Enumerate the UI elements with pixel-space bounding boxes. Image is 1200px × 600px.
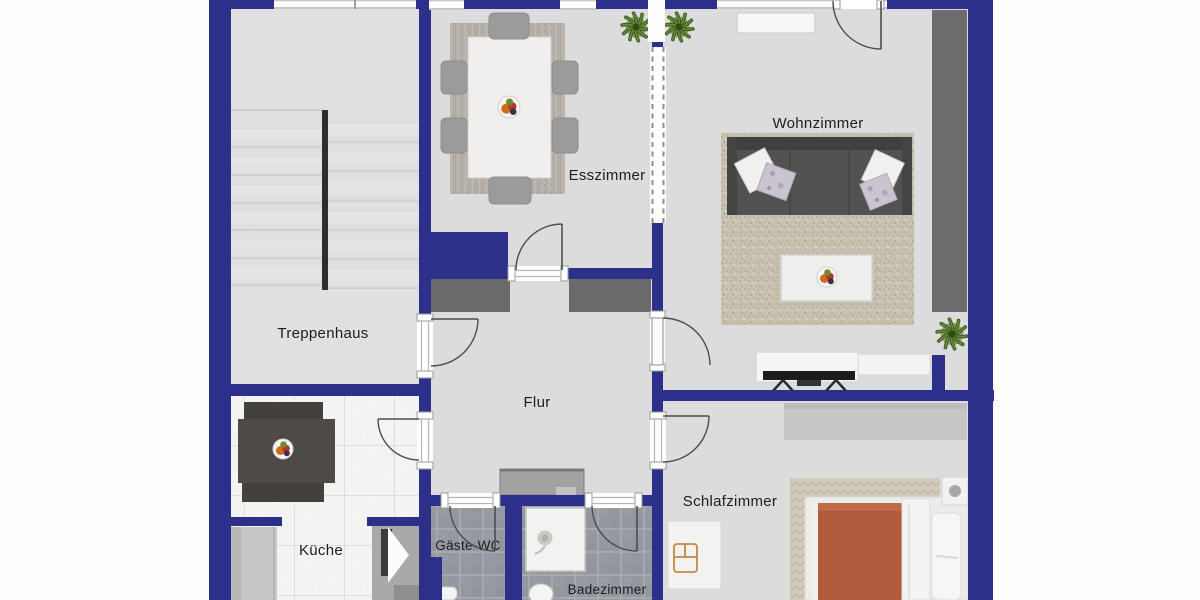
svg-text:Flur: Flur: [523, 394, 550, 411]
svg-text:Treppenhaus: Treppenhaus: [277, 325, 368, 342]
svg-text:Esszimmer: Esszimmer: [569, 167, 646, 184]
svg-text:Wohnzimmer: Wohnzimmer: [772, 115, 863, 132]
svg-text:Badezimmer: Badezimmer: [568, 582, 647, 597]
svg-text:Küche: Küche: [299, 542, 343, 559]
svg-text:Schlafzimmer: Schlafzimmer: [683, 493, 777, 510]
